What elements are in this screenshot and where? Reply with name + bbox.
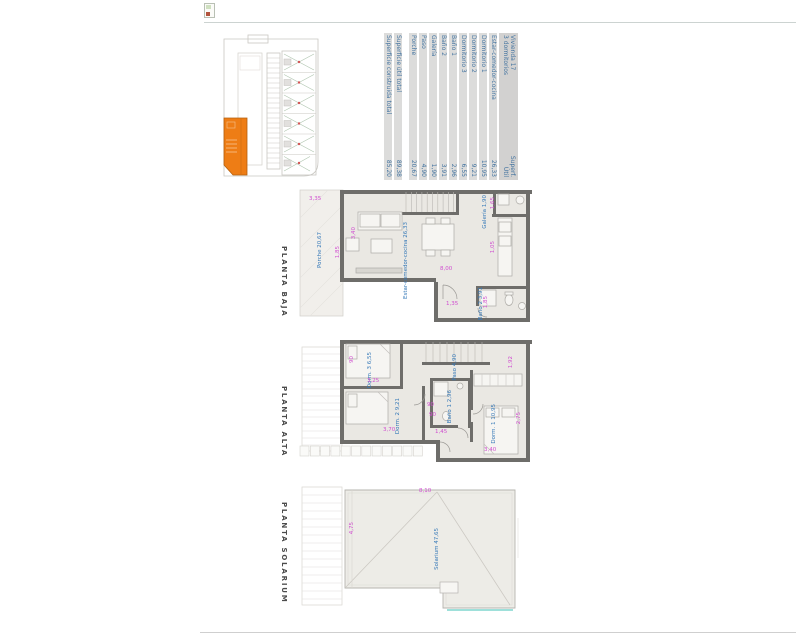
porch-area xyxy=(300,190,343,316)
table-title: Vivienda 17 3 dormitorios xyxy=(502,33,518,145)
planta-alta-title: PLANTA ALTA xyxy=(280,386,288,457)
shower-icon xyxy=(480,290,496,306)
room-name: Paso xyxy=(419,33,427,145)
table-unit-header: Superf. Útil xyxy=(502,145,518,180)
planta-solarium-title: PLANTA SOLARIUM xyxy=(280,502,288,603)
shower-icon xyxy=(434,382,448,396)
room-name: Dormitorio 2 xyxy=(469,33,477,145)
room-area: 10,95 xyxy=(479,145,487,180)
table-unit-line2: Útil xyxy=(502,145,509,177)
table-row: Dormitorio 2 9,21 xyxy=(469,33,477,180)
room-area: 20,67 xyxy=(409,145,417,180)
table-total-row: Superficie útil total 89,38 xyxy=(394,33,402,180)
solarium-slab xyxy=(345,490,518,610)
room-area: 26,33 xyxy=(489,145,497,180)
table-totals: Superficie útil total 89,38 Superficie c… xyxy=(384,33,402,180)
table-row: Baño 1 2,96 xyxy=(449,33,457,180)
table-title-line2: 3 dormitorios xyxy=(502,35,509,145)
table-total-row: Superficie construida total 85,20 xyxy=(384,33,392,180)
toilet-icon xyxy=(443,412,450,421)
plan-sheet: Vivienda 17 3 dormitorios Superf. Útil E… xyxy=(0,0,800,640)
room-area: 9,21 xyxy=(469,145,477,180)
room-name: Galería xyxy=(429,33,437,145)
total-area: 89,38 xyxy=(394,145,402,180)
pergola-strip xyxy=(302,487,342,605)
stair-access-box xyxy=(440,582,458,593)
armchair-icon xyxy=(346,238,359,251)
table-row: Galería 1,90 xyxy=(429,33,437,180)
toilet-icon xyxy=(505,295,513,306)
planta-alta-plan xyxy=(296,338,534,474)
room-area: 3,91 xyxy=(439,145,447,180)
room-area: 4,90 xyxy=(419,145,427,180)
table-row: Porche 20,67 xyxy=(409,33,417,180)
table-title-line1: Vivienda 17 xyxy=(509,35,516,145)
stairs-path-icon xyxy=(267,53,280,169)
pergola-strip xyxy=(302,347,342,451)
room-name: Baño 1 xyxy=(449,33,457,145)
area-table: Vivienda 17 3 dormitorios Superf. Útil E… xyxy=(378,33,518,180)
washer-icon xyxy=(498,194,509,205)
coffee-table-icon xyxy=(371,239,392,253)
bottom-divider xyxy=(200,632,796,633)
table-gap xyxy=(402,33,407,180)
room-name: Porche xyxy=(409,33,417,145)
roof-x-lines xyxy=(284,54,314,171)
porch-roof-slats xyxy=(300,446,422,456)
table-header-row: Vivienda 17 3 dormitorios Superf. Útil xyxy=(499,33,518,180)
hob-icon xyxy=(499,236,511,246)
room-name: Estar-comedor-cocina xyxy=(489,33,497,145)
top-divider xyxy=(204,22,796,23)
table-rows: Estar-comedor-cocina 26,33 Dormitorio 1 … xyxy=(409,33,497,180)
room-name: Dormitorio 1 xyxy=(479,33,487,145)
table-unit-line1: Superf. xyxy=(509,145,516,177)
planta-baja-plan xyxy=(296,188,534,334)
area-table-rotated: Vivienda 17 3 dormitorios Superf. Útil E… xyxy=(378,33,518,180)
room-area: 6,55 xyxy=(459,145,467,180)
total-name: Superficie construida total xyxy=(384,33,392,145)
highlighted-unit xyxy=(224,118,247,175)
table-row: Baño 2 3,91 xyxy=(439,33,447,180)
planta-baja-title: PLANTA BAJA xyxy=(280,246,288,318)
table-row: Paso 4,90 xyxy=(419,33,427,180)
planta-solarium-plan xyxy=(296,478,534,620)
room-name: Dormitorio 3 xyxy=(459,33,467,145)
room-area: 2,96 xyxy=(449,145,457,180)
room-area: 1,90 xyxy=(429,145,437,180)
laundry-sink-icon xyxy=(516,196,524,204)
table-row: Estar-comedor-cocina 26,33 xyxy=(489,33,497,180)
unit-roofs xyxy=(282,51,316,175)
bath-sink-icon xyxy=(457,383,463,389)
dining-table-icon xyxy=(422,224,454,250)
table-row: Dormitorio 3 6,55 xyxy=(459,33,467,180)
sink-icon xyxy=(499,222,511,232)
placeholder-green-chip xyxy=(206,5,211,9)
room-name: Baño 2 xyxy=(439,33,447,145)
site-plan xyxy=(220,34,324,182)
table-row: Dormitorio 1 10,95 xyxy=(479,33,487,180)
total-area: 85,20 xyxy=(384,145,392,180)
pool-outline xyxy=(240,56,260,70)
image-placeholder-icon xyxy=(204,3,215,18)
total-name: Superficie útil total xyxy=(394,33,402,145)
bath-sink-icon xyxy=(519,303,526,310)
tv-unit-icon xyxy=(356,268,402,273)
placeholder-red-chip xyxy=(206,12,210,16)
roof-vents xyxy=(298,61,300,164)
